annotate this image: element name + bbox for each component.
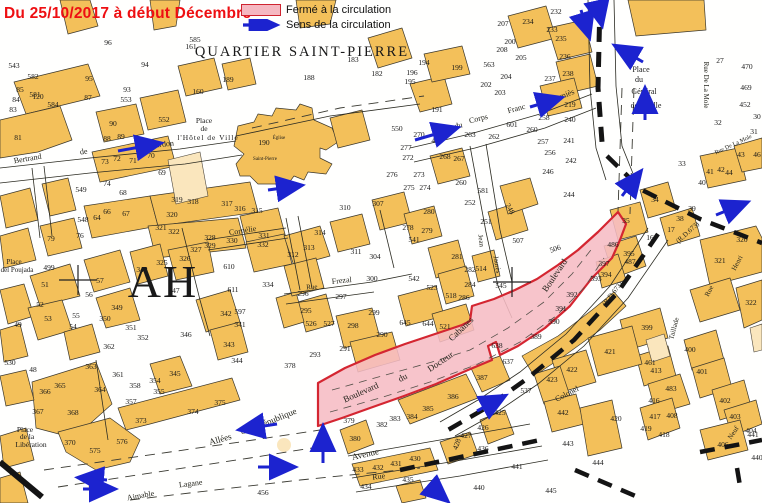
place-name-label: Libération xyxy=(15,440,46,449)
parcel-number: 601 xyxy=(506,120,518,129)
street-name-label: Taillade xyxy=(667,317,681,341)
parcel-number: 425 xyxy=(494,408,506,417)
parcel-number: 232 xyxy=(550,7,562,16)
parcel-number: 274 xyxy=(419,183,431,192)
parcel-number: 375 xyxy=(214,398,226,407)
parcel-number: 237 xyxy=(544,74,556,83)
parcel-number: 408 xyxy=(666,411,678,420)
parcel-number: 644 xyxy=(422,319,434,328)
parcel-number: 394 xyxy=(600,270,612,279)
parcel-number: 219 xyxy=(564,100,576,109)
parcel-number: 252 xyxy=(464,198,476,207)
parcel-number: 433 xyxy=(352,465,364,474)
parcel-number: 362 xyxy=(103,342,115,351)
parcel-number: 380 xyxy=(349,434,361,443)
parcel-number: 506 xyxy=(548,242,562,254)
parcel-number: 208 xyxy=(496,45,508,54)
parcel-number: 486 xyxy=(607,240,619,249)
parcel-number: 70 xyxy=(147,151,155,160)
place-name-label: du xyxy=(635,75,643,84)
parcel-number: 400 xyxy=(684,345,696,354)
parcel-number: 205 xyxy=(515,53,527,62)
parcel-number: 419 xyxy=(640,424,652,433)
parcel-number: 552 xyxy=(158,115,170,124)
parcel-number: 494 xyxy=(431,136,443,145)
parcel-number: 373 xyxy=(135,416,147,425)
parcel-number: 244 xyxy=(563,190,575,199)
street-name-label: Rue De La Mole xyxy=(702,62,710,109)
parcel-number: 38 xyxy=(676,214,684,223)
parcel-number: 637 xyxy=(502,357,514,366)
parcel-number: 346 xyxy=(180,330,192,339)
parcel-number: 469 xyxy=(740,83,752,92)
parcel-number: 499 xyxy=(43,263,55,272)
place-name-label: del Poujada xyxy=(1,266,35,274)
street-name-label: Lagane xyxy=(178,478,203,490)
parcel-number: 421 xyxy=(604,347,616,356)
parcel-number: 32 xyxy=(714,118,722,127)
parcel-number: 401 xyxy=(696,367,708,376)
parcel-number: 311 xyxy=(351,247,362,256)
parcel-number: 358 xyxy=(129,381,141,390)
place-name-label: QUARTIER SAINT-PIERRE xyxy=(195,44,409,60)
parcel-number: 518 xyxy=(445,291,457,300)
parcel-number: 312 xyxy=(287,250,299,259)
parcel-number: 423 xyxy=(546,375,558,384)
parcel-number: 42 xyxy=(717,165,725,174)
parcel-number: 537 xyxy=(520,386,532,395)
parcel-number: 383 xyxy=(389,414,401,423)
map-title: Du 25/10/2017 à début Décembre xyxy=(4,5,251,23)
parcel-number: 56 xyxy=(85,290,93,299)
parcel-number: 310 xyxy=(339,203,351,212)
traffic-direction-arrow xyxy=(429,485,444,498)
parcel-number: 366 xyxy=(39,387,51,396)
parcel-number: 16 xyxy=(646,233,654,242)
parcel-number: 43 xyxy=(737,150,745,159)
parcel-number: 72 xyxy=(113,154,121,163)
parcel-number: 48 xyxy=(29,365,37,374)
parcel-number: 523 xyxy=(426,283,438,292)
parcel-number: 350 xyxy=(99,314,111,323)
place-name-label: Place xyxy=(6,258,21,266)
parcel-number: 84 xyxy=(12,95,20,104)
parcel-number: 256 xyxy=(544,148,556,157)
parcel-number: 417 xyxy=(649,412,661,421)
parcel-number: 241 xyxy=(563,136,575,145)
parcel-number: 236 xyxy=(559,52,571,61)
parcel-number: 332 xyxy=(257,240,269,249)
parcel-number: 364 xyxy=(94,385,106,394)
parcel-number: 260 xyxy=(455,178,467,187)
street-name-label: de xyxy=(79,146,88,156)
parcel-number: 40 xyxy=(698,178,706,187)
parcel-number: 251 xyxy=(480,217,492,226)
parcel-number: 202 xyxy=(480,80,492,89)
parcel-number: 297 xyxy=(335,292,347,301)
parcel-number: 530 xyxy=(4,358,16,367)
parcel-number: 35 xyxy=(622,216,630,225)
parcel-number: 387 xyxy=(476,373,488,382)
parcel-number: 542 xyxy=(408,274,420,283)
parcel-number: 267 xyxy=(453,154,465,163)
parcel-number: 581 xyxy=(29,90,41,99)
parcel-number: 385 xyxy=(422,404,434,413)
parcel-number: 262 xyxy=(488,132,500,141)
parcel-number: 386 xyxy=(447,392,459,401)
parcel-number: 27 xyxy=(716,56,724,65)
parcel-number: 357 xyxy=(125,397,137,406)
parcel-number: 413 xyxy=(650,366,662,375)
parcel-number: 235 xyxy=(555,34,567,43)
parcel-number: 365 xyxy=(54,381,66,390)
parcel-number: 238 xyxy=(562,69,574,78)
parcel-number: 17 xyxy=(667,225,675,234)
parcel-number: 90 xyxy=(109,119,117,128)
parcel-number: 188 xyxy=(303,73,315,82)
parcel-number: 295 xyxy=(300,306,312,315)
parcel-number: 195 xyxy=(404,77,416,86)
parcel-number: 391 xyxy=(555,304,567,313)
parcel-number: 263 xyxy=(464,130,476,139)
parcel-number: 281 xyxy=(451,252,463,261)
parcel-number: 49 xyxy=(14,320,22,329)
parcel-number: 51 xyxy=(41,280,49,289)
city-map: 1209658516154358285581848358487959355394… xyxy=(0,0,762,503)
parcel-number: 416 xyxy=(648,396,660,405)
parcel-number: 354 xyxy=(149,376,161,385)
parcel-number: 85 xyxy=(16,85,24,94)
parcel-number: 69 xyxy=(158,168,166,177)
legend-direction-label: Sens de la circulation xyxy=(286,19,391,31)
parcel-number: 541 xyxy=(408,235,420,244)
parcel-number: 57 xyxy=(96,276,104,285)
parcel-number: 286 xyxy=(458,293,470,302)
parcel-number: 576 xyxy=(116,437,128,446)
parcel-number: 272 xyxy=(402,153,414,162)
parcel-number: 41 xyxy=(706,167,714,176)
place-name-label: Église xyxy=(273,135,286,141)
parcel-number: 327 xyxy=(190,245,202,254)
parcel-number: 581 xyxy=(477,186,489,195)
parcel-number: 545 xyxy=(495,281,507,290)
parcel-number: 322 xyxy=(745,298,757,307)
parcel-number: 543 xyxy=(8,61,20,70)
parcel-number: 275 xyxy=(403,183,415,192)
parcel-number: 521 xyxy=(439,322,451,331)
parcel-number: 246 xyxy=(542,167,554,176)
parcel-number: 349 xyxy=(111,303,123,312)
parcel-number: 34 xyxy=(651,195,659,204)
parcel-number: 304 xyxy=(369,252,381,261)
parcel-number: 319 xyxy=(171,195,183,204)
parcel-number: 330 xyxy=(226,236,238,245)
place-name-label: l'Hôtel de Ville xyxy=(177,133,238,142)
parcel-number: 320 xyxy=(166,210,178,219)
parcel-number: 257 xyxy=(537,137,549,146)
parcel-number: 399 xyxy=(641,323,653,332)
parcel-number: 331 xyxy=(258,231,270,240)
parcel-number: 548 xyxy=(77,215,89,224)
parcel-number: 39 xyxy=(688,204,696,213)
parcel-number: 379 xyxy=(343,416,355,425)
parcel-number: 403 xyxy=(729,412,741,421)
parcel-number: 182 xyxy=(371,69,383,78)
parcel-number: 444 xyxy=(592,458,604,467)
parcel-number: 290 xyxy=(376,330,388,339)
parcel-number: 584 xyxy=(47,100,59,109)
parcel-number: 549 xyxy=(75,185,87,194)
parcel-number: 507 xyxy=(512,236,524,245)
parcel-number: 370 xyxy=(64,438,76,447)
parcel-number: 93 xyxy=(123,85,131,94)
parcel-number: 645 xyxy=(399,318,411,327)
parcel-number: 81 xyxy=(14,133,22,142)
parcel-number: 374 xyxy=(187,407,199,416)
parcel-number: 207 xyxy=(497,19,509,28)
parcel-number: 456 xyxy=(257,488,269,497)
parcel-number: 276 xyxy=(386,170,398,179)
parcel-number: 300 xyxy=(366,274,378,283)
parcel-number: 76 xyxy=(76,231,84,240)
parcel-number: 389 xyxy=(530,332,542,341)
parcel-number: 83 xyxy=(9,105,17,114)
parcel-number: 71 xyxy=(129,156,137,165)
parcel-number: 194 xyxy=(418,58,430,67)
parcel-number: 597 xyxy=(234,307,246,316)
street-name-label: Rue xyxy=(372,471,386,482)
parcel-number: 268 xyxy=(439,152,451,161)
parcel-number: 418 xyxy=(658,430,670,439)
parcel-number: 233 xyxy=(546,25,558,34)
parcel-number: 278 xyxy=(402,223,414,232)
parcel-number: 277 xyxy=(400,143,412,152)
parcel-number: 436 xyxy=(477,444,489,453)
parcel-number: 352 xyxy=(137,333,149,342)
parcel-number: 550 xyxy=(391,124,403,133)
street-name-label: Aimable xyxy=(126,489,155,503)
parcel-number: 345 xyxy=(169,369,181,378)
parcel-number: 79 xyxy=(47,234,55,243)
parcel-number: 343 xyxy=(223,340,235,349)
parcel-number: 320 xyxy=(736,235,748,244)
parcel-number: 298 xyxy=(347,321,359,330)
parcel-number: 30 xyxy=(753,112,761,121)
parcel-number: 406 xyxy=(717,440,729,449)
parcel-number: 52 xyxy=(36,300,44,309)
parcel-number: 434 xyxy=(360,482,372,491)
parcel-number: 431 xyxy=(390,459,402,468)
direction-arrow-icon xyxy=(241,19,281,31)
parcel-number: 307 xyxy=(372,199,384,208)
parcel-number: 96 xyxy=(104,38,112,47)
parcel-number: 514 xyxy=(475,264,487,273)
parcel-number: 435 xyxy=(402,475,414,484)
street-name-label: Franc xyxy=(506,102,526,116)
parcel-number: 299 xyxy=(368,308,380,317)
traffic-direction-arrow xyxy=(83,478,107,480)
parcel-number: 402 xyxy=(719,396,731,405)
parcel-number: 378 xyxy=(284,361,296,370)
parcel-number: 191 xyxy=(431,105,443,114)
traffic-direction-arrow xyxy=(716,204,743,215)
parcel-number: 442 xyxy=(557,408,569,417)
parcel-number: 553 xyxy=(120,95,132,104)
parcel-number: 291 xyxy=(339,344,351,353)
parcel-number: 160 xyxy=(192,87,204,96)
parcel-number: 638 xyxy=(491,341,503,350)
parcel-number: 53 xyxy=(44,314,52,323)
parcel-number: 342 xyxy=(220,309,232,318)
parcel-number: 240 xyxy=(564,115,576,124)
parcel-number: 321 xyxy=(714,256,726,265)
parcel-number: 46 xyxy=(753,150,761,159)
parcel-number: 334 xyxy=(262,280,274,289)
parcel-number: 190 xyxy=(258,138,270,147)
street-name-label: Corps xyxy=(468,112,489,125)
place-name-label: de xyxy=(200,124,208,133)
parcel-number: 89 xyxy=(117,132,125,141)
parcel-number: 363 xyxy=(85,362,97,371)
street-name-label: Frezal xyxy=(331,275,353,286)
parcel-number: 280 xyxy=(423,207,435,216)
parcel-number: 422 xyxy=(566,365,578,374)
parcel-number: 200 xyxy=(504,37,516,46)
parcel-number: 31 xyxy=(750,127,758,136)
parcel-number: 367 xyxy=(32,407,44,416)
parcel-number: 527 xyxy=(323,319,335,328)
parcel-number: 526 xyxy=(305,319,317,328)
parcel-number: 94 xyxy=(141,60,149,69)
parcel-number: 440 xyxy=(751,453,762,462)
parcel-number: 427 xyxy=(460,431,472,440)
parcel-number: 318 xyxy=(187,197,199,206)
parcel-number: 73 xyxy=(101,157,109,166)
parcel-number: 54 xyxy=(69,322,77,331)
parcel-number: 355 xyxy=(153,387,165,396)
parcel-number: 55 xyxy=(72,311,80,320)
parcel-number: 74 xyxy=(103,179,111,188)
parcel-number: 610 xyxy=(223,262,235,271)
parcel-number: 344 xyxy=(231,356,243,365)
parcel-number: 293 xyxy=(309,350,321,359)
parcel-number: 368 xyxy=(67,408,79,417)
parcel-number: 341 xyxy=(234,320,246,329)
parcel-number: 315 xyxy=(251,206,263,215)
parcel-number: 430 xyxy=(409,454,421,463)
parcel-number: 470 xyxy=(741,62,753,71)
parcel-number: 44 xyxy=(725,168,733,177)
parcel-number: 313 xyxy=(303,243,315,252)
parcel-number: 189 xyxy=(222,75,234,84)
parcel-number: 321 xyxy=(155,223,167,232)
parcel-number: 443 xyxy=(562,439,574,448)
parcel-number: 203 xyxy=(494,88,506,97)
parcel-number: 426 xyxy=(477,423,489,432)
legend-closed-label: Fermé à la circulation xyxy=(286,4,391,16)
parcel-number: 390 xyxy=(548,317,560,326)
parcel-number: 317 xyxy=(221,199,233,208)
parcel-number: 441 xyxy=(511,462,523,471)
parcel-number: 258 xyxy=(538,113,550,122)
parcel-number: 67 xyxy=(122,209,130,218)
parcel-number: 397 xyxy=(598,259,610,268)
cadastral-map-page: 1209658516154358285581848358487959355394… xyxy=(0,0,762,503)
map-legend: Fermé à la circulation Sens de la circul… xyxy=(241,2,391,32)
parcel-number: 361 xyxy=(112,370,124,379)
parcel-number: 441 xyxy=(747,430,759,439)
parcel-number: 445 xyxy=(545,486,557,495)
parcel-number: 66 xyxy=(103,207,111,216)
parcel-number: 322 xyxy=(168,227,180,236)
parcel-number: 382 xyxy=(376,420,388,429)
parcel-number: 420 xyxy=(610,414,622,423)
street-name-label: Jean xyxy=(476,234,486,248)
legend-direction-row: Sens de la circulation xyxy=(241,17,391,32)
parcel-number: 64 xyxy=(93,213,101,222)
parcel-number: 314 xyxy=(314,228,326,237)
parcel-number: 282 xyxy=(464,265,476,274)
parcel-number: 273 xyxy=(413,170,425,179)
legend-closed-row: Fermé à la circulation xyxy=(241,2,391,17)
traffic-direction-arrow xyxy=(268,186,297,190)
parcel-number: 563 xyxy=(483,60,495,69)
place-name-label: AH xyxy=(128,256,198,307)
parcel-number: 316 xyxy=(234,204,246,213)
street-name-label: Rue xyxy=(306,283,318,292)
parcel-number: 234 xyxy=(522,17,534,26)
parcel-number: 196 xyxy=(406,68,418,77)
parcel-number: 199 xyxy=(451,63,463,72)
parcel-number: 582 xyxy=(27,72,39,81)
parcel-number: 284 xyxy=(464,280,476,289)
place-name-label: Place xyxy=(632,65,650,74)
parcel-number: 483 xyxy=(665,384,677,393)
parcel-number: 392 xyxy=(566,290,578,299)
parcel-number: 575 xyxy=(89,446,101,455)
parcel-number: 260 xyxy=(526,125,538,134)
parcel-number: 440 xyxy=(473,483,485,492)
parcel-number: 351 xyxy=(125,323,137,332)
street-name-label: du xyxy=(454,120,464,131)
parcel-number: 87 xyxy=(84,93,92,102)
parcel-number: 279 xyxy=(421,226,433,235)
parcel-number: 95 xyxy=(85,74,93,83)
parcel-number: 204 xyxy=(500,72,512,81)
parcel-number: 68 xyxy=(119,188,127,197)
parcel-number: 329 xyxy=(204,241,216,250)
parcel-number: 487 xyxy=(624,257,636,266)
parcel-number: 33 xyxy=(678,159,686,168)
place-name-label: Saint-Pierre xyxy=(253,157,278,162)
parcel-number: 88 xyxy=(103,134,111,143)
parcel-number: 611 xyxy=(228,285,239,294)
parcel-number: 384 xyxy=(406,412,418,421)
parcel-number: 452 xyxy=(739,100,751,109)
closed-area-swatch xyxy=(241,4,281,16)
traffic-direction-arrow xyxy=(619,48,643,62)
parcel-number: 393 xyxy=(590,274,602,283)
parcel-number: 242 xyxy=(565,156,577,165)
